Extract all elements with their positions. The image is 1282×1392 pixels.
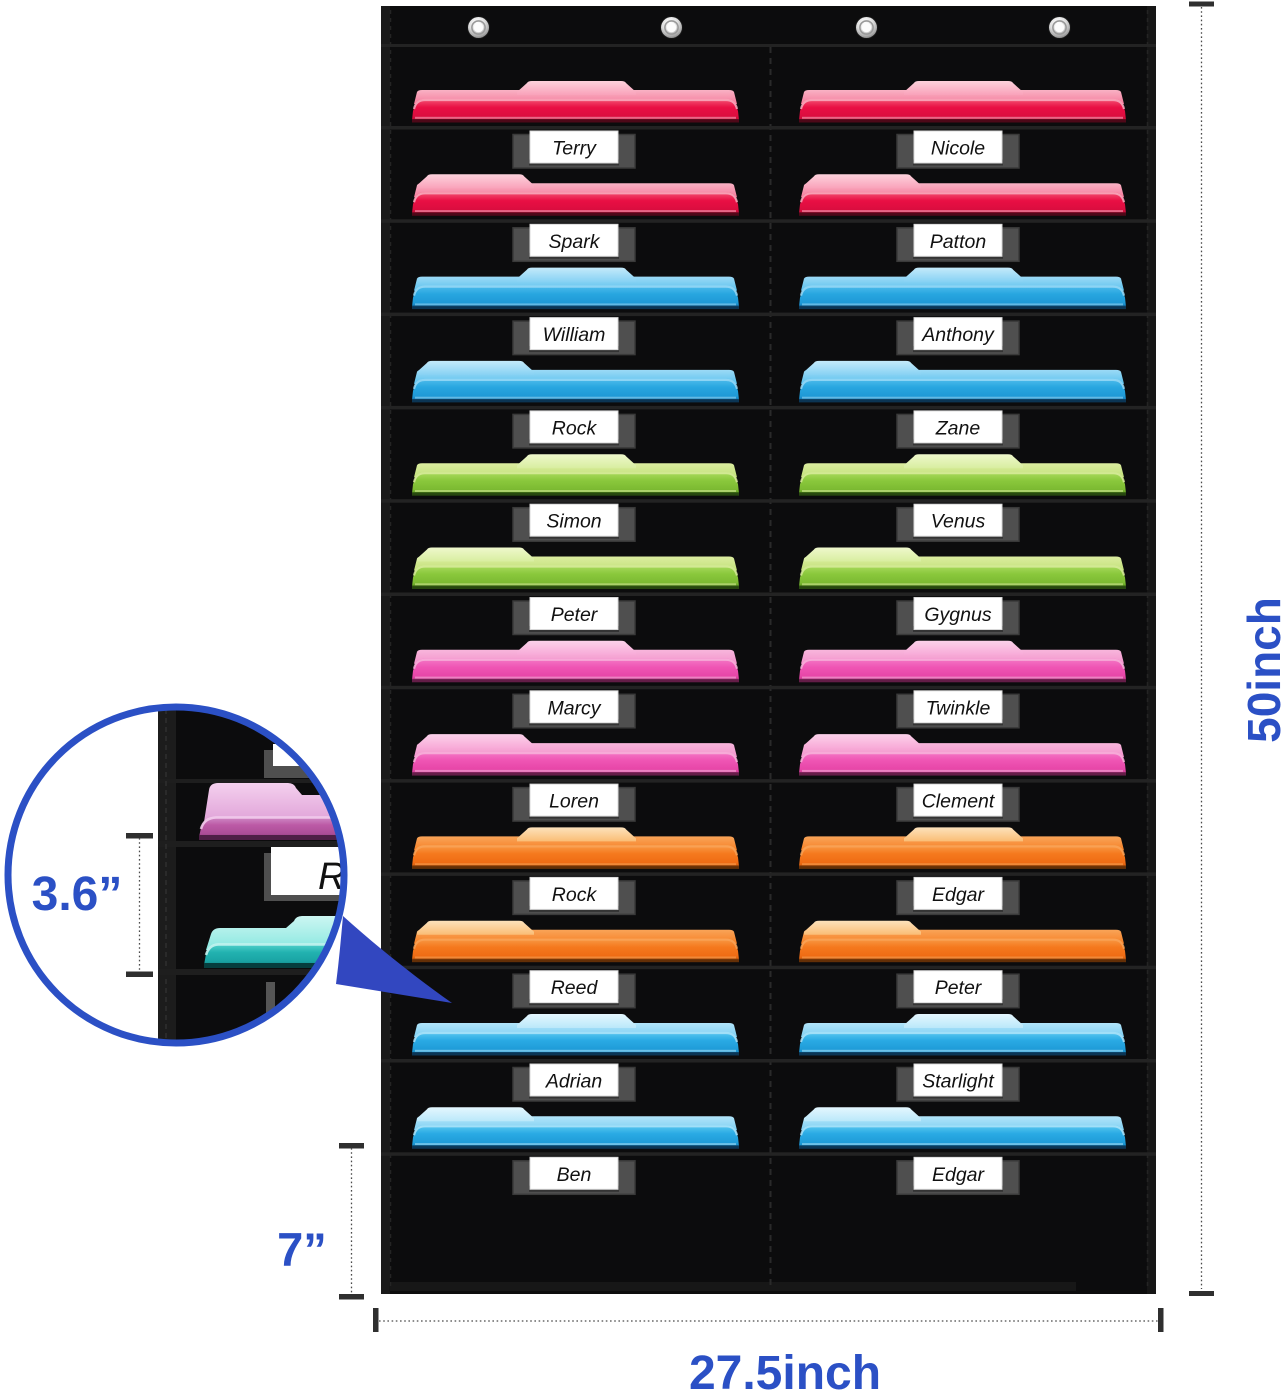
svg-text:Edgar: Edgar <box>932 884 986 906</box>
svg-text:3.6”: 3.6” <box>32 868 123 921</box>
svg-text:Marcy: Marcy <box>547 697 601 719</box>
svg-text:Patton: Patton <box>930 231 986 253</box>
svg-text:Simon: Simon <box>546 511 601 533</box>
svg-text:Rock: Rock <box>552 417 598 439</box>
svg-text:Venus: Venus <box>931 511 986 533</box>
svg-text:Terry: Terry <box>552 138 597 160</box>
svg-text:Peter: Peter <box>935 977 983 999</box>
svg-text:Rock: Rock <box>552 884 598 906</box>
svg-text:Adrian: Adrian <box>545 1071 602 1093</box>
svg-text:Anthony: Anthony <box>921 324 995 346</box>
svg-text:Reed: Reed <box>551 977 599 999</box>
svg-text:Twinkle: Twinkle <box>926 697 991 719</box>
svg-text:Loren: Loren <box>549 791 599 813</box>
svg-text:Starlight: Starlight <box>922 1071 995 1093</box>
svg-text:Gygnus: Gygnus <box>924 604 991 626</box>
svg-text:Zane: Zane <box>935 417 981 439</box>
svg-text:7”: 7” <box>277 1223 327 1276</box>
svg-text:50inch: 50inch <box>1238 597 1282 743</box>
svg-text:27.5inch: 27.5inch <box>689 1347 881 1392</box>
svg-text:Spark: Spark <box>549 231 601 253</box>
svg-text:William: William <box>543 324 606 346</box>
svg-text:Ben: Ben <box>557 1164 592 1186</box>
svg-text:Clement: Clement <box>922 791 996 813</box>
svg-text:Nicole: Nicole <box>931 138 985 160</box>
svg-text:Edgar: Edgar <box>932 1164 986 1186</box>
svg-text:Peter: Peter <box>551 604 599 626</box>
